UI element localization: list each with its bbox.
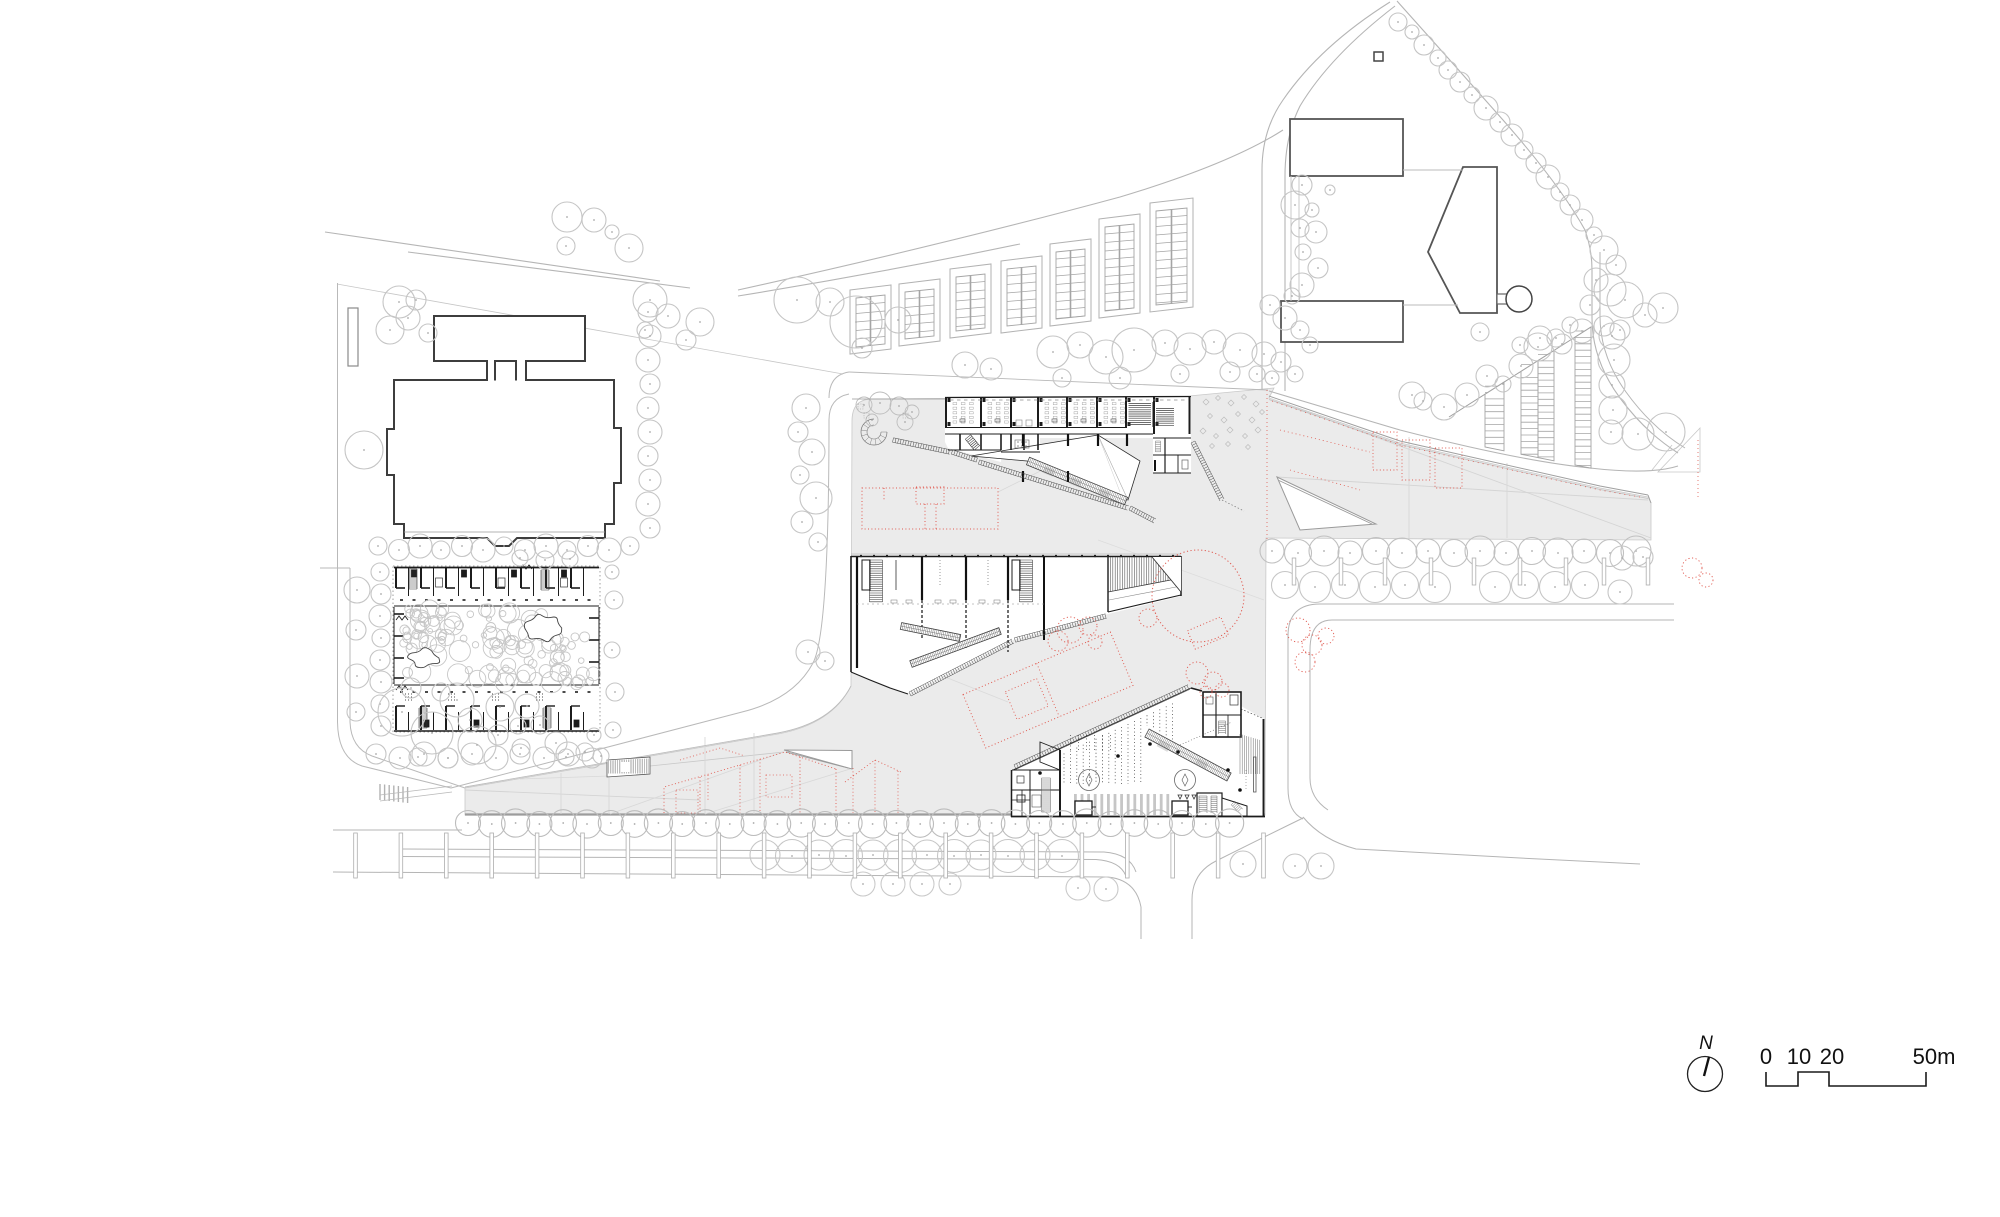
svg-text:50m: 50m — [1913, 1044, 1956, 1069]
svg-text:20: 20 — [1820, 1044, 1844, 1069]
svg-text:N: N — [1699, 1033, 1713, 1054]
svg-text:0: 0 — [1760, 1044, 1772, 1069]
svg-text:10: 10 — [1787, 1044, 1811, 1069]
